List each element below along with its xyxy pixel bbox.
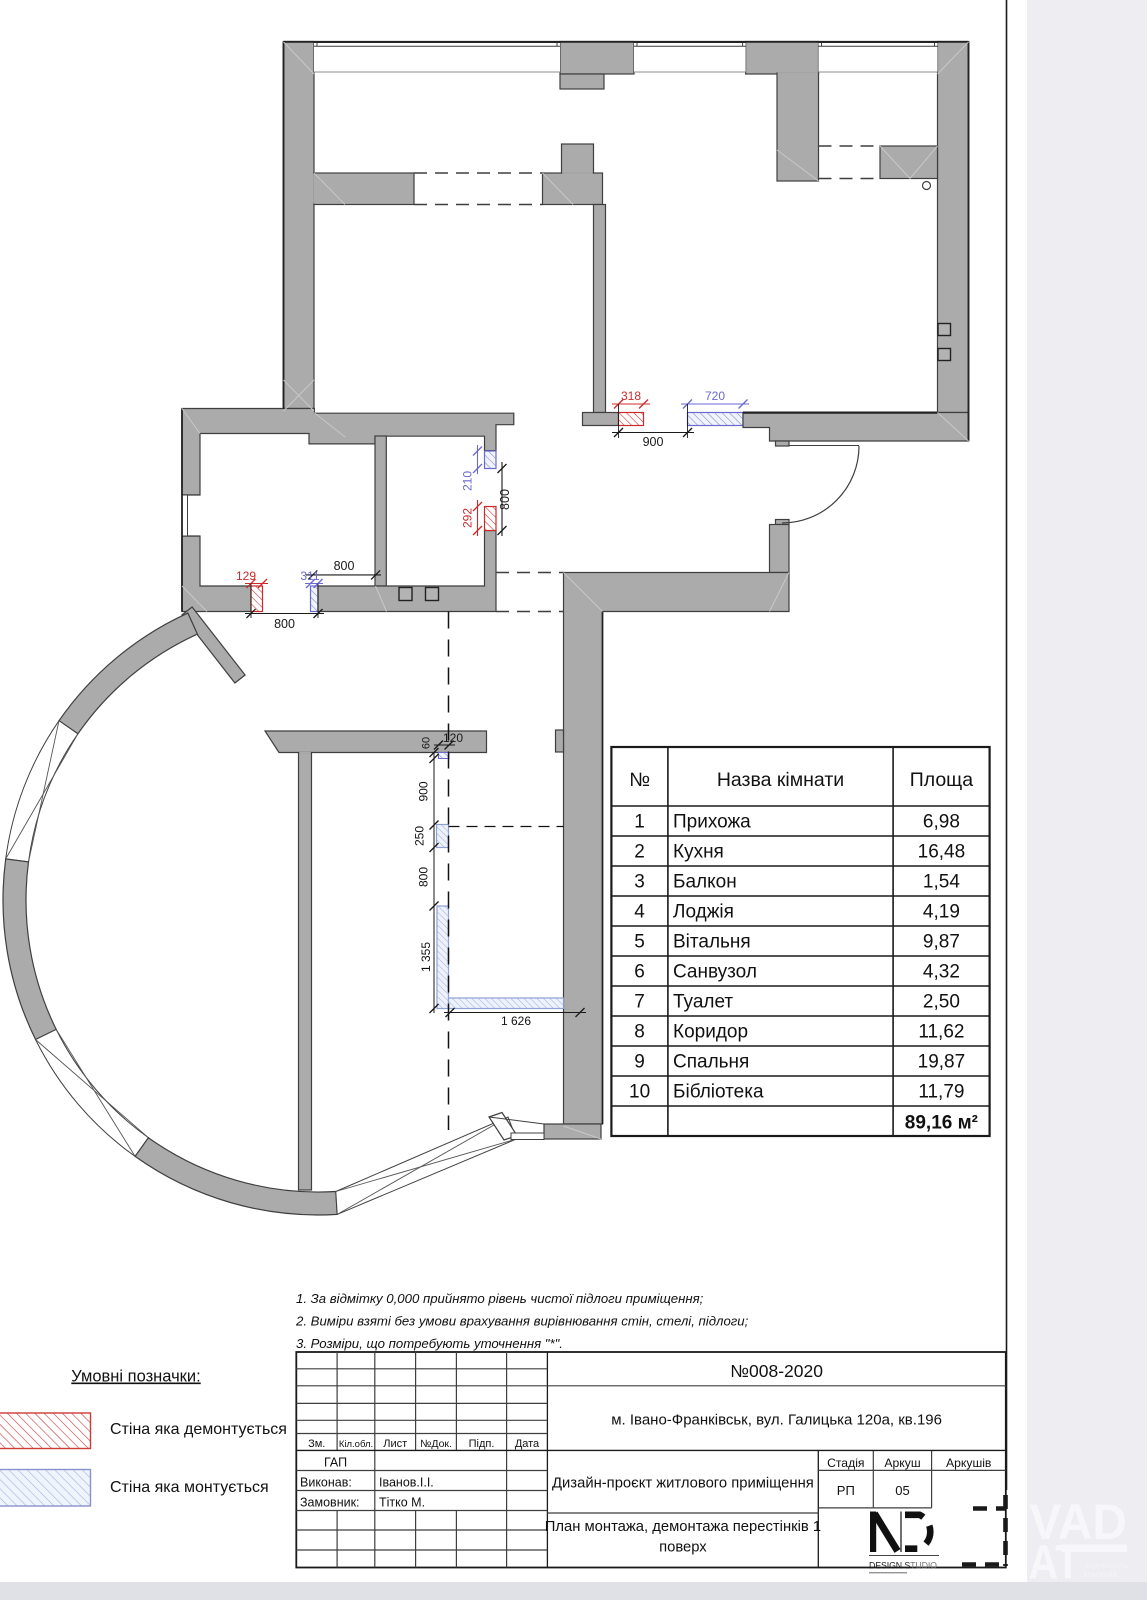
- svg-text:720: 720: [705, 389, 725, 403]
- svg-text:№008-2020: №008-2020: [730, 1361, 823, 1381]
- svg-text:1 626: 1 626: [501, 1014, 531, 1028]
- svg-text:Виконав:: Виконав:: [300, 1476, 352, 1490]
- svg-text:1. За відмітку 0,000 прийнято: 1. За відмітку 0,000 прийнято рівень чис…: [296, 1291, 704, 1306]
- svg-text:Дизайн-проєкт житлового приміщ: Дизайн-проєкт житлового приміщення: [552, 1476, 814, 1492]
- svg-text:8: 8: [634, 1022, 645, 1043]
- svg-text:План монтажа, демонтажа перест: План монтажа, демонтажа перестінків 1: [545, 1519, 821, 1535]
- svg-text:4,32: 4,32: [923, 962, 960, 983]
- svg-text:Санвузол: Санвузол: [673, 962, 757, 983]
- svg-text:Аркушів: Аркушів: [946, 1456, 991, 1470]
- svg-text:4,19: 4,19: [923, 902, 960, 923]
- svg-text:10: 10: [629, 1082, 650, 1103]
- svg-text:Замовник:: Замовник:: [300, 1496, 360, 1510]
- svg-text:318: 318: [621, 389, 641, 403]
- svg-text:1 355: 1 355: [419, 942, 433, 972]
- svg-text:Прихожа: Прихожа: [673, 812, 751, 833]
- svg-text:3. Розміри, що потребують уточ: 3. Розміри, що потребують уточнення "*".: [296, 1336, 563, 1351]
- svg-text:6,98: 6,98: [923, 812, 960, 833]
- svg-text:1,54: 1,54: [923, 872, 960, 893]
- svg-text:Лоджія: Лоджія: [673, 902, 734, 923]
- svg-text:800: 800: [498, 489, 512, 510]
- svg-text:89,16 м²: 89,16 м²: [905, 1113, 978, 1134]
- svg-text:Зм.: Зм.: [308, 1438, 325, 1450]
- svg-text:5: 5: [634, 932, 645, 953]
- svg-text:AT: AT: [1029, 1537, 1081, 1590]
- svg-text:Іванов.І.І.: Іванов.І.І.: [379, 1476, 434, 1490]
- svg-text:ГАП: ГАП: [324, 1456, 347, 1470]
- svg-text:250: 250: [413, 826, 427, 846]
- svg-text:м. Івано-Франківськ, вул. Гали: м. Івано-Франківськ, вул. Галицька 120а,…: [611, 1412, 942, 1429]
- svg-text:РП: РП: [837, 1483, 855, 1498]
- svg-text:900: 900: [417, 781, 431, 801]
- svg-text:DESIGN STUDIO: DESIGN STUDIO: [869, 1561, 937, 1571]
- svg-text:Стіна яка демонтується: Стіна яка демонтується: [110, 1421, 287, 1438]
- svg-text:поверх: поверх: [659, 1540, 707, 1556]
- svg-text:6: 6: [634, 962, 645, 983]
- svg-text:7: 7: [634, 992, 645, 1013]
- svg-text:800: 800: [334, 559, 355, 573]
- svg-text:Тітко М.: Тітко М.: [379, 1496, 425, 1510]
- svg-text:60: 60: [421, 737, 433, 749]
- svg-text:Спальня: Спальня: [673, 1052, 749, 1073]
- svg-text:Підп.: Підп.: [469, 1438, 495, 1450]
- svg-text:нерухомість: нерухомість: [1084, 1561, 1129, 1570]
- svg-text:Стадія: Стадія: [827, 1456, 864, 1470]
- svg-text:Аркуш: Аркуш: [884, 1456, 920, 1470]
- svg-text:120: 120: [443, 731, 463, 745]
- svg-text:№: №: [629, 769, 650, 791]
- svg-text:Назва кімнати: Назва кімнати: [717, 769, 844, 791]
- svg-text:800: 800: [274, 617, 295, 631]
- svg-text:129: 129: [236, 569, 256, 583]
- svg-text:2. Виміри взяті без умови врах: 2. Виміри взяті без умови врахування вир…: [295, 1314, 749, 1329]
- svg-text:1: 1: [634, 812, 645, 833]
- svg-text:11,62: 11,62: [918, 1022, 964, 1043]
- svg-text:16,48: 16,48: [918, 842, 966, 863]
- svg-text:19,87: 19,87: [918, 1052, 966, 1073]
- svg-text:Коридор: Коридор: [673, 1022, 748, 1043]
- svg-text:2: 2: [634, 842, 645, 863]
- svg-text:292: 292: [461, 508, 475, 528]
- svg-text:4: 4: [634, 902, 645, 923]
- svg-text:Умовні позначки:: Умовні позначки:: [71, 1368, 200, 1386]
- svg-text:3: 3: [634, 872, 645, 893]
- svg-text:Туалет: Туалет: [673, 992, 733, 1013]
- svg-text:900: 900: [643, 435, 664, 449]
- svg-text:800: 800: [417, 867, 431, 887]
- svg-text:Кіл.обл.: Кіл.обл.: [339, 1439, 373, 1450]
- svg-text:Площа: Площа: [910, 769, 974, 791]
- svg-text:11,79: 11,79: [918, 1082, 964, 1103]
- svg-text:05: 05: [895, 1483, 909, 1498]
- svg-text:9,87: 9,87: [923, 932, 960, 953]
- svg-text:311: 311: [300, 569, 319, 583]
- svg-text:Вітальня: Вітальня: [673, 932, 751, 953]
- svg-text:Стіна яка монтується: Стіна яка монтується: [110, 1479, 269, 1496]
- svg-text:Бібліотека: Бібліотека: [673, 1082, 764, 1103]
- svg-text:2,50: 2,50: [923, 992, 960, 1013]
- svg-text:Лист: Лист: [383, 1438, 407, 1450]
- svg-text:9: 9: [634, 1052, 645, 1073]
- svg-text:№Док.: №Док.: [420, 1438, 452, 1450]
- svg-text:Кухня: Кухня: [673, 842, 724, 863]
- svg-text:210: 210: [461, 471, 475, 491]
- svg-text:Дата: Дата: [515, 1438, 540, 1450]
- svg-text:Балкон: Балкон: [673, 872, 737, 893]
- svg-text:компанія: компанія: [1084, 1570, 1117, 1579]
